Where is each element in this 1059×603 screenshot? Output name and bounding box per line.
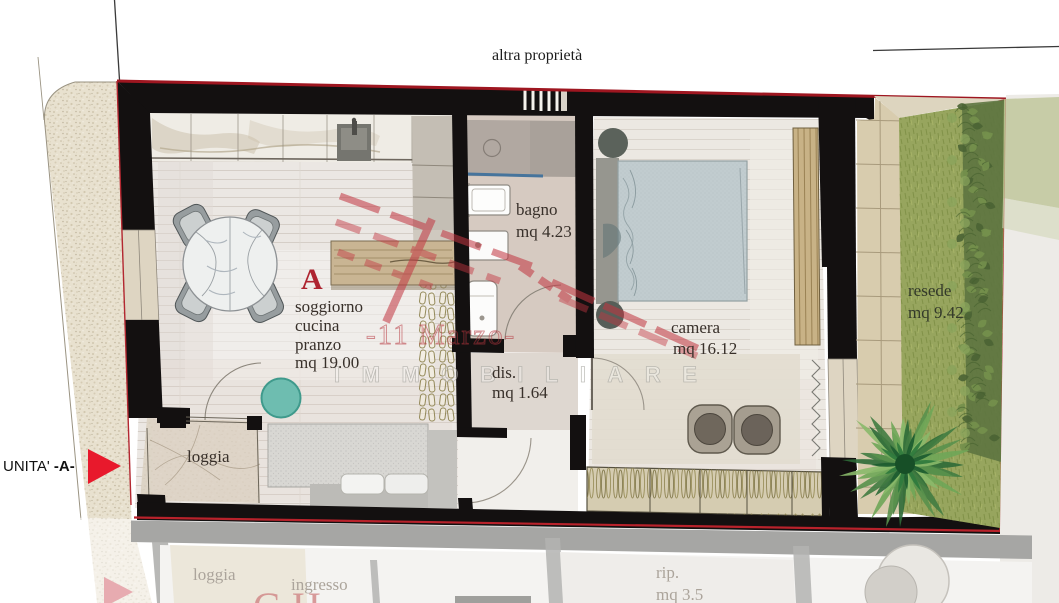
svg-text:mq 3.5: mq 3.5 [656,585,703,603]
svg-text:mq 4.23: mq 4.23 [516,222,572,241]
svg-text:bagno: bagno [516,200,558,219]
svg-text:loggia: loggia [187,447,230,466]
svg-text:soggiorno: soggiorno [295,297,363,316]
svg-text:rip.: rip. [656,563,679,582]
svg-text:G H: G H [253,584,321,603]
svg-text:mq 16.12: mq 16.12 [673,339,737,358]
svg-text:mq 19.00: mq 19.00 [295,353,359,372]
svg-text:camera: camera [671,318,721,337]
svg-text:-11 Marzo-: -11 Marzo- [366,319,516,351]
svg-text:dis.: dis. [492,363,516,382]
svg-text:altra proprietà: altra proprietà [492,47,582,64]
svg-text:resede: resede [908,281,951,300]
svg-text:A: A [301,263,323,296]
svg-text:pranzo: pranzo [295,335,341,354]
svg-text:mq 9.42: mq 9.42 [908,303,964,322]
svg-text:loggia: loggia [193,565,236,584]
svg-text:UNITA' -A-: UNITA' -A- [3,458,75,475]
svg-text:mq 1.64: mq 1.64 [492,383,548,402]
svg-text:cucina: cucina [295,316,340,335]
